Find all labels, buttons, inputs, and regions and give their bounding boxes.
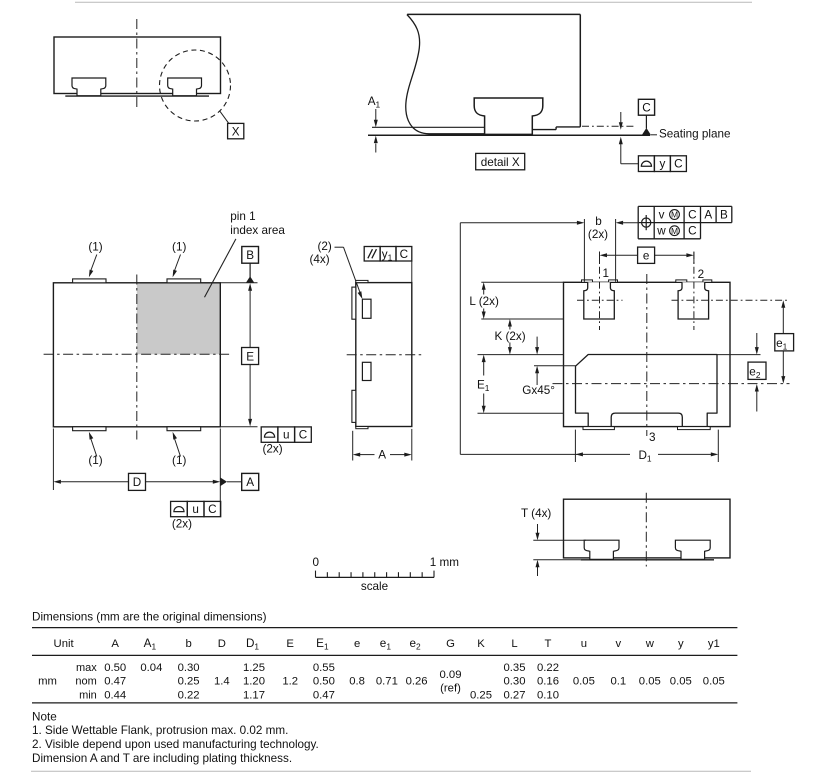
svg-text:Dimension A and T are includin: Dimension A and T are including plating …: [32, 752, 292, 765]
svg-text:mm: mm: [38, 676, 57, 688]
svg-text:scale: scale: [361, 580, 388, 593]
svg-text:(ref): (ref): [440, 683, 461, 695]
svg-text:0.05: 0.05: [703, 676, 725, 688]
svg-text:2: 2: [698, 268, 705, 281]
svg-text:e: e: [643, 250, 650, 263]
svg-text:C: C: [688, 225, 696, 238]
svg-text:C: C: [642, 102, 650, 115]
svg-text:M: M: [671, 226, 678, 236]
svg-text:detail X: detail X: [481, 156, 520, 169]
svg-text:min: min: [79, 689, 97, 701]
svg-text:0.05: 0.05: [639, 676, 661, 688]
svg-text:0.30: 0.30: [178, 662, 200, 674]
svg-text:A: A: [246, 476, 254, 489]
svg-text:(2): (2): [318, 240, 332, 253]
svg-text:B: B: [720, 208, 728, 221]
svg-text:B: B: [246, 249, 254, 262]
svg-text:2. Visible depend upon used ma: 2. Visible depend upon used manufacturin…: [32, 738, 319, 751]
svg-text:1.4: 1.4: [214, 676, 230, 688]
svg-text:0.09: 0.09: [440, 669, 462, 681]
svg-text:u: u: [581, 638, 587, 650]
svg-text:Note: Note: [32, 710, 57, 723]
svg-text:0.05: 0.05: [670, 676, 692, 688]
svg-text:0.05: 0.05: [573, 676, 595, 688]
svg-text:A: A: [378, 449, 386, 462]
svg-text:K: K: [477, 638, 485, 650]
svg-text:e: e: [354, 638, 360, 650]
svg-text:C: C: [400, 248, 408, 261]
svg-text:max: max: [76, 662, 97, 674]
svg-text:K (2x): K (2x): [495, 330, 526, 343]
svg-text:Seating plane: Seating plane: [659, 127, 730, 140]
svg-text:Dimensions (mm are the origina: Dimensions (mm are the original dimensio…: [32, 611, 267, 624]
svg-text:E: E: [286, 638, 294, 650]
svg-text:A: A: [111, 638, 119, 650]
svg-text:0.10: 0.10: [537, 689, 559, 701]
svg-text:Unit: Unit: [54, 638, 75, 650]
svg-text:X: X: [232, 126, 240, 139]
svg-text:v: v: [659, 208, 665, 221]
svg-text:u: u: [283, 429, 290, 442]
svg-text:0.04: 0.04: [140, 662, 162, 674]
svg-text:y: y: [678, 638, 684, 650]
svg-text:0: 0: [313, 556, 320, 569]
svg-text:y: y: [659, 158, 665, 171]
svg-text:nom: nom: [75, 676, 96, 688]
svg-text:0.71: 0.71: [376, 676, 398, 688]
svg-text:1. Side Wettable Flank, protru: 1. Side Wettable Flank, protrusion max. …: [32, 724, 288, 737]
svg-text:1 mm: 1 mm: [430, 556, 459, 569]
svg-text:(2x): (2x): [588, 228, 608, 241]
svg-text:b: b: [595, 215, 602, 228]
svg-text:0.30: 0.30: [504, 676, 526, 688]
svg-text:C: C: [674, 158, 682, 171]
svg-text:C: C: [688, 208, 696, 221]
svg-text:v: v: [615, 638, 621, 650]
svg-text:L: L: [511, 638, 517, 650]
svg-text:0.22: 0.22: [178, 689, 200, 701]
svg-text:1: 1: [603, 267, 610, 280]
svg-text:D: D: [133, 476, 141, 489]
svg-text:1.25: 1.25: [243, 662, 265, 674]
svg-text:M: M: [671, 210, 678, 220]
svg-text:pin 1: pin 1: [230, 210, 255, 223]
svg-text:0.44: 0.44: [104, 689, 126, 701]
svg-text:0.25: 0.25: [178, 676, 200, 688]
svg-text:0.35: 0.35: [504, 662, 526, 674]
svg-text:T (4x): T (4x): [521, 507, 551, 520]
svg-text:E: E: [246, 350, 254, 363]
svg-text:0.26: 0.26: [406, 676, 428, 688]
svg-text:(4x): (4x): [310, 253, 330, 266]
svg-text:C: C: [299, 429, 307, 442]
svg-text:1.2: 1.2: [282, 676, 298, 688]
svg-text:G: G: [446, 638, 455, 650]
svg-text:(1): (1): [88, 454, 102, 467]
svg-text:3: 3: [649, 431, 656, 444]
svg-text:(1): (1): [172, 240, 186, 253]
svg-text:A: A: [704, 208, 712, 221]
svg-text:L (2x): L (2x): [469, 295, 499, 308]
svg-text:0.50: 0.50: [104, 662, 126, 674]
svg-text:0.22: 0.22: [537, 662, 559, 674]
svg-text:0.25: 0.25: [470, 689, 492, 701]
svg-text:0.1: 0.1: [610, 676, 626, 688]
svg-text:0.16: 0.16: [537, 676, 559, 688]
svg-text:(1): (1): [172, 454, 186, 467]
svg-text:y1: y1: [708, 638, 720, 650]
svg-text:(2x): (2x): [263, 443, 283, 456]
svg-text:index area: index area: [230, 224, 285, 237]
svg-text:0.55: 0.55: [313, 662, 335, 674]
svg-text:Gx45°: Gx45°: [522, 384, 555, 397]
svg-text:w: w: [645, 638, 655, 650]
svg-text:w: w: [656, 225, 666, 238]
svg-text:1.20: 1.20: [243, 676, 265, 688]
svg-text:T: T: [545, 638, 552, 650]
svg-text:0.50: 0.50: [313, 676, 335, 688]
svg-text:0.27: 0.27: [504, 689, 526, 701]
svg-text:b: b: [185, 638, 191, 650]
svg-text:0.47: 0.47: [313, 689, 335, 701]
svg-text:(2x): (2x): [172, 517, 192, 530]
svg-text:D: D: [218, 638, 226, 650]
svg-text:(1): (1): [88, 240, 102, 253]
svg-text:u: u: [192, 503, 199, 516]
svg-text:0.8: 0.8: [349, 676, 365, 688]
svg-text:1.17: 1.17: [243, 689, 265, 701]
svg-text:0.47: 0.47: [104, 676, 126, 688]
svg-text:C: C: [208, 503, 216, 516]
